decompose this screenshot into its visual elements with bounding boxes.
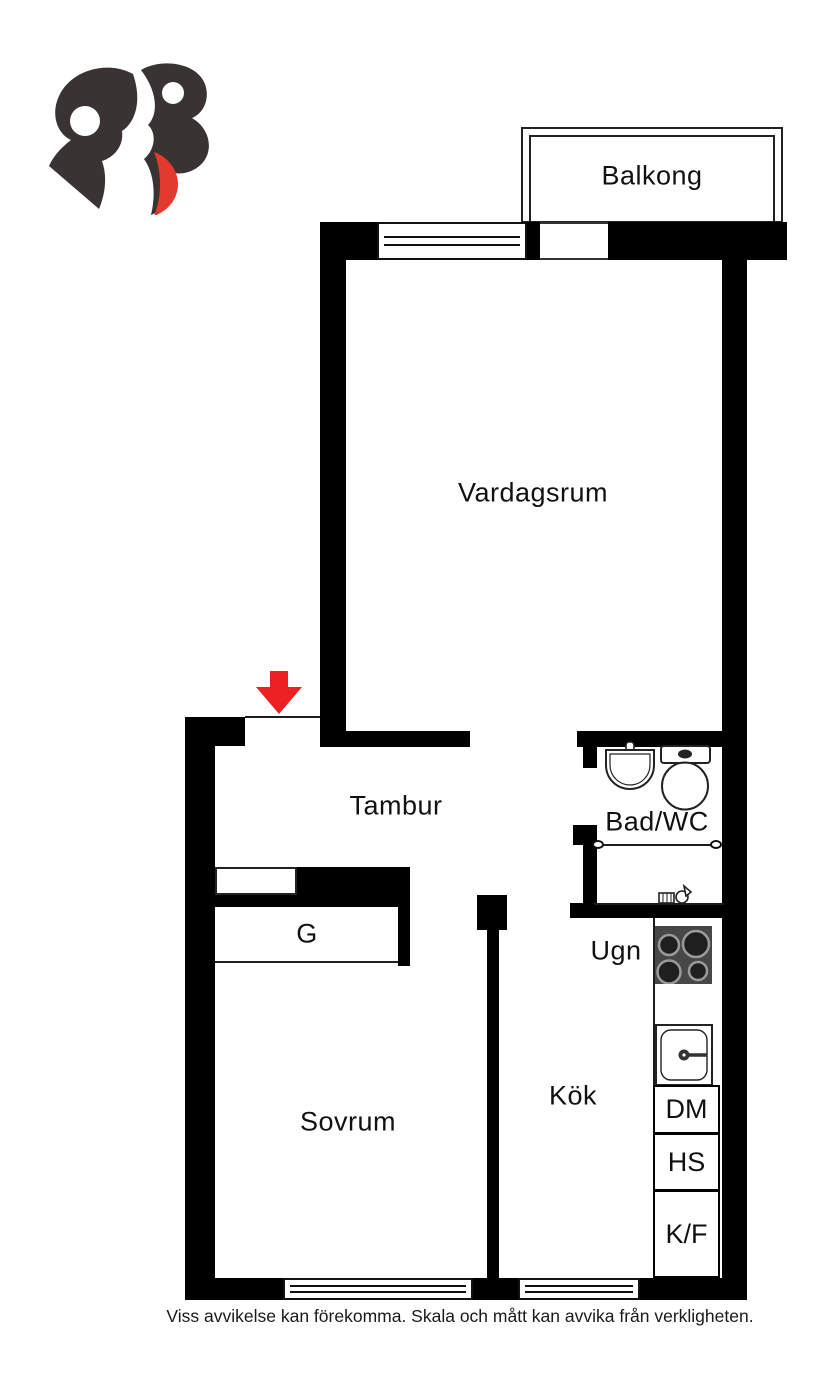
wall-segment [570,903,722,918]
room-label-tambur: Tambur [349,791,442,822]
wall-segment [640,1278,747,1300]
kitchen-sink-icon [655,1024,713,1086]
room-label-garderob: G [296,919,318,950]
window [377,222,527,260]
room-label-sovrum: Sovrum [300,1107,396,1138]
disclaimer-text: Viss avvikelse kan förekomma. Skala och … [60,1306,825,1327]
stove-burners-icon [655,926,712,984]
appliance-hs: HS [653,1133,720,1191]
room-label-balkong: Balkong [601,161,702,192]
wall-segment [573,825,583,845]
wall-segment [722,260,747,1300]
room-label-ugn: Ugn [590,936,641,967]
floor-drain-faucet-icon [658,884,694,906]
window [283,1278,473,1300]
appliance-label-kf: K/F [665,1219,707,1250]
toilet-icon [658,742,714,812]
wall-segment [583,825,597,912]
appliance-label-dm: DM [666,1094,708,1125]
appliance-fridge-freezer: K/F [653,1190,720,1278]
wall-segment [477,895,507,930]
wall-segment [527,222,540,260]
room-label-vardagsrum: Vardagsrum [458,478,608,509]
hall-wardrobe-niche [215,867,297,895]
wall-segment [215,895,398,907]
wall-segment [297,867,410,895]
room-label-bad-wc: Bad/WC [605,807,709,838]
appliance-dishwasher: DM [653,1085,720,1134]
broker-logo-icon [45,60,215,215]
wall-segment [608,222,787,260]
wall-segment [583,731,597,768]
room-label-kok: Kök [549,1081,597,1112]
wall-segment [185,717,215,1300]
partition-end-dot [592,840,604,849]
window [518,1278,640,1300]
bathroom-sink-icon [600,741,660,793]
entrance-arrow-icon [254,671,304,715]
wall-segment [185,1278,283,1300]
wall-segment [320,222,346,747]
appliance-label-hs: HS [668,1147,706,1178]
wall-segment [346,731,470,747]
balcony-door-opening [540,222,608,260]
entry-door-threshold [245,716,320,718]
wall-segment [473,1278,518,1300]
wall-segment [398,895,410,966]
wall-segment [487,930,499,1278]
bathroom-partition-line [599,844,713,846]
partition-end-dot [710,840,722,849]
floor-plan: Balkong G [0,0,825,1396]
